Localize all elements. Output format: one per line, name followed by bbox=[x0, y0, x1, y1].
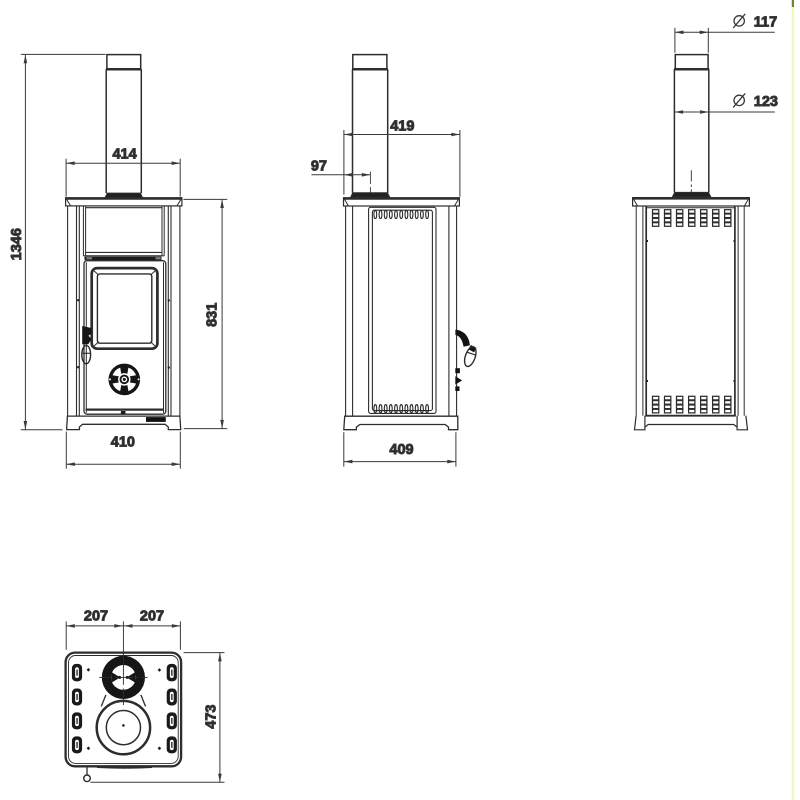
svg-text:207: 207 bbox=[140, 608, 164, 624]
svg-text:473: 473 bbox=[204, 704, 220, 728]
svg-text:410: 410 bbox=[111, 435, 135, 451]
svg-text:409: 409 bbox=[389, 442, 413, 458]
svg-text:97: 97 bbox=[311, 159, 327, 175]
svg-text:123: 123 bbox=[754, 94, 778, 110]
svg-text:117: 117 bbox=[754, 14, 777, 30]
svg-text:207: 207 bbox=[84, 608, 108, 624]
svg-text:831: 831 bbox=[205, 303, 221, 327]
svg-text:1346: 1346 bbox=[9, 228, 25, 260]
svg-text:419: 419 bbox=[390, 118, 414, 134]
svg-text:414: 414 bbox=[112, 147, 136, 163]
